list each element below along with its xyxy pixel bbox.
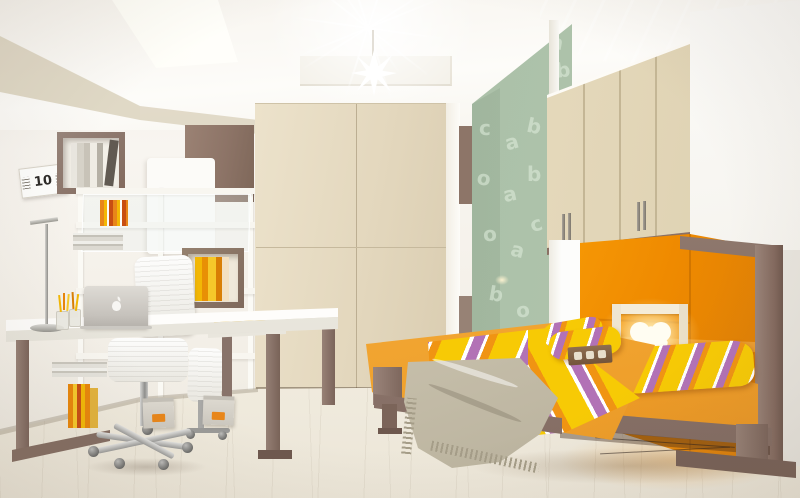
return-desk-leg	[266, 334, 280, 456]
wallpaper-letter: b	[525, 113, 544, 139]
box-hole	[598, 350, 607, 359]
pencil	[63, 293, 65, 310]
desk-leg	[16, 340, 29, 456]
book-spine	[90, 143, 97, 187]
wallpaper-letter: a	[502, 129, 521, 156]
calendar-day-number: 10	[33, 172, 53, 189]
bed-left-leg-foot	[378, 428, 402, 434]
book-spine	[97, 143, 103, 187]
wardrobe-panel-seam	[256, 247, 458, 248]
cabinet-handle	[637, 202, 640, 231]
bookend	[104, 140, 119, 187]
cabinet-handle	[562, 214, 565, 243]
wall-panel-brown	[459, 126, 472, 204]
wallpaper-letter: o	[514, 297, 531, 323]
book-spine	[77, 143, 84, 187]
box-hole	[574, 352, 583, 361]
pencil-cup	[56, 311, 69, 330]
apple-logo-icon	[112, 301, 121, 311]
caster-wheel	[114, 458, 125, 469]
chair-floor-shadow	[86, 458, 206, 476]
caster-wheel	[88, 446, 99, 457]
wallpaper-letter: b	[527, 162, 541, 186]
return-desk-foot	[258, 450, 292, 459]
caster-wheel	[182, 442, 193, 453]
box-label	[152, 414, 165, 422]
wooden-box-on-bed	[567, 344, 612, 365]
book-spine	[208, 257, 216, 301]
box-hole	[586, 351, 595, 360]
storage-box	[142, 397, 174, 428]
niche-frame	[679, 304, 688, 348]
pencil-cup	[69, 309, 81, 327]
desk-leg	[322, 329, 335, 405]
calendar-day-name	[21, 177, 30, 190]
book-spine	[222, 257, 229, 301]
desk-lamp-pole	[45, 224, 48, 326]
magazines	[100, 198, 128, 226]
wall-light-reflection	[495, 275, 509, 285]
wallpaper-letter: c	[527, 211, 546, 237]
niche-frame	[612, 304, 688, 314]
book-stack	[52, 362, 107, 377]
cube-shelf-interior	[63, 138, 119, 188]
floor-book	[90, 388, 98, 428]
wallpaper-letter: o	[482, 221, 498, 246]
cabinet-handle	[568, 213, 571, 242]
floor-book	[68, 384, 90, 428]
book-spine	[195, 257, 202, 301]
office-chair-seat	[108, 338, 188, 382]
storage-box	[203, 395, 235, 425]
laptop	[84, 286, 148, 328]
wall-cube-shelf	[57, 132, 125, 194]
laptop-base	[80, 326, 152, 329]
caster-wheel	[218, 431, 227, 440]
bedroom-photo: 10	[0, 0, 800, 498]
wallpaper-letter: c	[479, 116, 491, 140]
cube-shelf-interior	[188, 254, 238, 302]
office-chair-2-seat	[187, 347, 223, 402]
wallpaper-letter: a	[508, 237, 527, 264]
box-label	[212, 412, 225, 420]
caster-wheel	[158, 459, 169, 470]
wallpaper-letter: o	[475, 165, 492, 191]
wallpaper-letter: a	[501, 181, 519, 207]
cabinet-handle	[643, 201, 646, 230]
return-desk-leg	[222, 334, 232, 398]
book-stack	[73, 233, 123, 250]
